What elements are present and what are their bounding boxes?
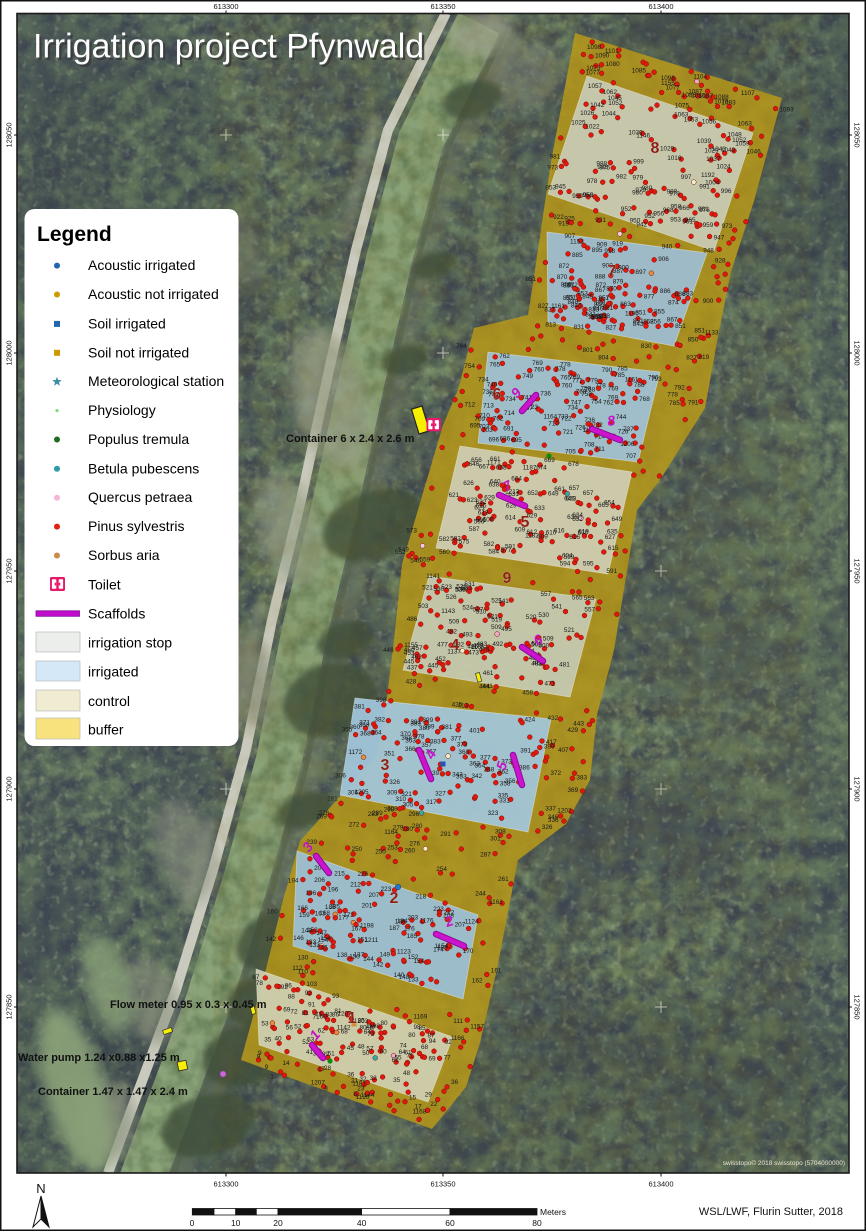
svg-text:Betula pubescens: Betula pubescens <box>88 460 199 476</box>
svg-text:60: 60 <box>380 1049 388 1056</box>
svg-text:343: 343 <box>452 772 463 779</box>
svg-text:541: 541 <box>498 598 509 605</box>
svg-text:615: 615 <box>476 503 487 510</box>
svg-text:Legend: Legend <box>37 223 112 246</box>
svg-text:948: 948 <box>703 247 714 254</box>
svg-text:244: 244 <box>475 891 486 898</box>
svg-text:68: 68 <box>421 1044 429 1051</box>
svg-text:226: 226 <box>358 871 369 878</box>
svg-text:769: 769 <box>532 360 543 367</box>
svg-text:206: 206 <box>314 877 325 884</box>
svg-text:702: 702 <box>493 416 504 423</box>
svg-text:613400: 613400 <box>648 1180 673 1189</box>
svg-text:462: 462 <box>411 654 422 661</box>
svg-text:981: 981 <box>550 153 561 160</box>
svg-text:61: 61 <box>405 1049 413 1056</box>
svg-text:1045: 1045 <box>608 95 623 102</box>
svg-text:21: 21 <box>351 1078 359 1085</box>
svg-text:162: 162 <box>472 977 483 984</box>
svg-text:150: 150 <box>349 953 360 960</box>
svg-text:355: 355 <box>342 727 353 734</box>
svg-text:526: 526 <box>446 594 457 601</box>
svg-text:40: 40 <box>357 1218 367 1228</box>
svg-text:973: 973 <box>722 223 733 230</box>
svg-text:526: 526 <box>456 583 467 590</box>
svg-text:827: 827 <box>544 307 555 314</box>
svg-text:900: 900 <box>703 298 714 305</box>
svg-text:695: 695 <box>511 437 522 444</box>
svg-text:530: 530 <box>433 586 444 593</box>
svg-text:473: 473 <box>468 650 479 657</box>
svg-text:1192: 1192 <box>701 172 715 179</box>
svg-text:85: 85 <box>358 1018 366 1025</box>
svg-text:366: 366 <box>405 746 416 753</box>
svg-text:509: 509 <box>543 636 554 643</box>
svg-text:785: 785 <box>669 400 680 407</box>
svg-text:760: 760 <box>534 367 545 374</box>
svg-text:254: 254 <box>436 866 447 873</box>
svg-text:281: 281 <box>327 795 338 802</box>
svg-text:127900: 127900 <box>5 776 14 801</box>
svg-text:1075: 1075 <box>675 102 690 109</box>
svg-text:1029: 1029 <box>660 146 675 153</box>
svg-text:999: 999 <box>633 159 644 166</box>
svg-text:74: 74 <box>400 1043 408 1050</box>
svg-text:145: 145 <box>317 944 328 951</box>
svg-text:947: 947 <box>714 235 725 242</box>
svg-text:148: 148 <box>301 927 312 934</box>
svg-text:749: 749 <box>522 373 533 380</box>
svg-text:287: 287 <box>480 852 491 859</box>
svg-text:638: 638 <box>489 481 500 488</box>
svg-text:563: 563 <box>584 595 595 602</box>
svg-text:1025: 1025 <box>571 120 586 127</box>
svg-text:1044: 1044 <box>602 111 617 118</box>
svg-text:187: 187 <box>389 925 400 932</box>
svg-text:88: 88 <box>288 994 296 1001</box>
svg-text:127900: 127900 <box>853 776 862 801</box>
svg-text:0: 0 <box>190 1218 195 1228</box>
svg-text:1172: 1172 <box>349 749 363 756</box>
svg-text:1046: 1046 <box>747 148 762 155</box>
svg-text:1205: 1205 <box>354 789 369 796</box>
svg-text:92: 92 <box>305 990 313 997</box>
svg-text:62: 62 <box>318 1027 326 1034</box>
svg-text:958: 958 <box>671 203 682 210</box>
svg-text:36: 36 <box>451 1079 459 1086</box>
svg-text:1182: 1182 <box>525 533 539 540</box>
svg-text:146: 146 <box>293 935 304 942</box>
svg-text:445: 445 <box>428 663 439 670</box>
svg-text:897: 897 <box>635 269 646 276</box>
svg-text:Container 1.47 x 1.47 x 2.4 m: Container 1.47 x 1.47 x 2.4 m <box>38 1086 188 1098</box>
svg-text:744: 744 <box>616 414 627 421</box>
svg-text:831: 831 <box>574 324 585 331</box>
svg-text:1143: 1143 <box>441 608 455 615</box>
svg-text:128050: 128050 <box>853 122 862 147</box>
svg-text:128050: 128050 <box>5 122 14 147</box>
svg-text:595: 595 <box>583 561 594 568</box>
svg-text:792: 792 <box>674 384 685 391</box>
svg-text:289: 289 <box>372 810 383 817</box>
svg-text:736: 736 <box>540 391 551 398</box>
svg-text:492: 492 <box>492 641 503 648</box>
svg-text:900: 900 <box>618 265 629 272</box>
svg-text:1056: 1056 <box>702 119 717 126</box>
svg-text:326: 326 <box>389 779 400 786</box>
svg-text:928: 928 <box>715 257 726 264</box>
svg-text:509: 509 <box>449 619 460 626</box>
svg-text:591: 591 <box>606 568 617 575</box>
svg-text:337: 337 <box>545 805 556 812</box>
svg-text:872: 872 <box>596 282 607 289</box>
svg-text:722: 722 <box>561 416 572 423</box>
svg-text:368: 368 <box>401 735 412 742</box>
svg-text:691: 691 <box>503 426 514 433</box>
svg-text:856: 856 <box>561 282 572 289</box>
svg-text:1107: 1107 <box>741 90 755 97</box>
svg-text:1087: 1087 <box>699 93 714 100</box>
svg-text:168: 168 <box>319 910 330 917</box>
svg-text:364: 364 <box>371 730 382 737</box>
svg-text:760: 760 <box>562 383 573 390</box>
svg-text:91: 91 <box>308 1002 316 1009</box>
svg-text:695: 695 <box>470 423 481 430</box>
svg-text:851: 851 <box>633 318 644 325</box>
svg-text:754: 754 <box>464 363 475 370</box>
svg-text:870: 870 <box>606 286 617 293</box>
svg-text:80: 80 <box>381 1020 389 1027</box>
svg-text:678: 678 <box>568 461 579 468</box>
svg-text:298: 298 <box>384 807 395 814</box>
svg-text:429: 429 <box>567 727 578 734</box>
svg-text:8: 8 <box>651 140 660 157</box>
svg-text:6: 6 <box>493 386 502 403</box>
svg-text:778: 778 <box>560 362 571 369</box>
svg-text:127950: 127950 <box>5 558 14 583</box>
svg-text:486: 486 <box>407 616 418 623</box>
svg-text:28: 28 <box>324 1065 332 1072</box>
svg-text:830: 830 <box>641 343 652 350</box>
svg-text:1126: 1126 <box>356 1094 370 1101</box>
svg-text:1124: 1124 <box>465 919 479 926</box>
svg-text:154: 154 <box>414 958 425 965</box>
svg-text:9: 9 <box>503 570 512 587</box>
svg-text:1016: 1016 <box>667 155 682 162</box>
svg-text:296: 296 <box>409 811 420 818</box>
svg-text:32: 32 <box>370 1075 378 1082</box>
svg-text:1024: 1024 <box>716 163 731 170</box>
svg-text:771: 771 <box>572 378 583 385</box>
svg-text:218: 218 <box>416 893 427 900</box>
svg-text:321: 321 <box>401 791 412 798</box>
svg-text:80: 80 <box>532 1218 542 1228</box>
svg-text:845: 845 <box>582 294 593 301</box>
svg-text:565: 565 <box>572 595 583 602</box>
svg-text:103: 103 <box>306 981 317 988</box>
svg-text:851: 851 <box>635 309 646 316</box>
svg-text:978: 978 <box>587 178 598 185</box>
svg-text:92: 92 <box>281 984 289 991</box>
svg-text:530: 530 <box>538 612 549 619</box>
svg-text:142: 142 <box>373 961 384 968</box>
svg-text:769: 769 <box>608 395 619 402</box>
svg-text:885: 885 <box>572 252 583 259</box>
svg-text:428: 428 <box>406 678 417 685</box>
svg-text:276: 276 <box>319 810 330 817</box>
svg-text:649: 649 <box>612 516 623 523</box>
svg-text:616: 616 <box>554 527 565 534</box>
svg-text:669: 669 <box>544 457 555 464</box>
svg-text:112: 112 <box>292 965 303 972</box>
svg-text:1042: 1042 <box>590 102 605 109</box>
svg-text:94: 94 <box>429 1038 437 1045</box>
svg-text:323: 323 <box>488 810 499 817</box>
svg-text:1133: 1133 <box>705 329 719 336</box>
svg-text:461: 461 <box>483 670 494 677</box>
svg-text:1101: 1101 <box>605 48 619 55</box>
svg-text:35: 35 <box>393 1077 401 1084</box>
svg-text:382: 382 <box>374 717 385 724</box>
svg-text:22: 22 <box>430 1101 438 1108</box>
svg-text:661: 661 <box>554 486 565 493</box>
svg-text:1098: 1098 <box>587 44 602 51</box>
svg-text:804: 804 <box>598 355 609 362</box>
svg-text:342: 342 <box>472 773 483 780</box>
svg-text:980: 980 <box>667 188 678 195</box>
svg-text:381: 381 <box>354 704 365 711</box>
svg-text:317: 317 <box>426 799 437 806</box>
svg-text:Irrigation project Pfynwald: Irrigation project Pfynwald <box>33 28 424 66</box>
svg-text:560: 560 <box>439 549 450 556</box>
svg-text:Acoustic not irrigated: Acoustic not irrigated <box>88 286 219 302</box>
svg-text:705: 705 <box>565 449 576 456</box>
svg-text:69: 69 <box>320 1013 328 1020</box>
svg-text:212: 212 <box>350 882 361 889</box>
svg-text:1207: 1207 <box>311 1080 326 1087</box>
svg-text:510: 510 <box>476 608 487 615</box>
svg-text:895: 895 <box>592 247 603 254</box>
svg-text:711: 711 <box>595 446 606 453</box>
svg-text:1176: 1176 <box>420 918 434 925</box>
svg-text:Sorbus aria: Sorbus aria <box>88 547 160 563</box>
svg-text:696: 696 <box>489 436 500 443</box>
svg-text:980: 980 <box>642 185 653 192</box>
svg-text:160: 160 <box>267 909 278 916</box>
svg-text:383: 383 <box>576 774 587 781</box>
svg-text:1093: 1093 <box>780 107 795 114</box>
svg-text:48: 48 <box>403 1070 411 1077</box>
svg-text:582: 582 <box>484 541 495 548</box>
svg-text:1104: 1104 <box>693 73 707 80</box>
svg-text:1096: 1096 <box>661 75 676 82</box>
svg-text:Scaffolds: Scaffolds <box>88 605 145 621</box>
svg-text:1166: 1166 <box>451 1035 465 1042</box>
svg-text:848: 848 <box>568 299 579 306</box>
svg-text:713: 713 <box>483 403 494 410</box>
svg-text:621: 621 <box>449 492 460 499</box>
svg-text:872: 872 <box>559 263 570 270</box>
svg-text:852: 852 <box>643 319 654 326</box>
svg-text:15: 15 <box>409 1095 417 1102</box>
svg-text:838: 838 <box>599 313 610 320</box>
svg-text:1043: 1043 <box>712 146 727 153</box>
svg-text:557: 557 <box>541 591 552 598</box>
svg-text:128000: 128000 <box>853 340 862 365</box>
svg-text:161: 161 <box>491 968 502 975</box>
svg-text:768: 768 <box>585 386 596 393</box>
svg-text:401: 401 <box>469 727 480 734</box>
svg-text:867: 867 <box>667 317 678 324</box>
svg-text:69: 69 <box>283 1006 291 1013</box>
svg-text:483: 483 <box>477 641 488 648</box>
svg-text:389: 389 <box>424 724 435 731</box>
svg-text:452: 452 <box>435 656 446 663</box>
svg-text:874: 874 <box>668 300 679 307</box>
svg-text:Container 6 x 2.4 x 2.6 m: Container 6 x 2.4 x 2.6 m <box>286 433 415 445</box>
svg-text:587: 587 <box>469 526 480 533</box>
svg-text:619: 619 <box>578 528 589 535</box>
svg-text:521: 521 <box>422 585 433 592</box>
svg-text:1123: 1123 <box>397 949 411 956</box>
svg-text:N: N <box>36 1181 45 1196</box>
svg-text:604: 604 <box>562 552 573 559</box>
svg-text:Toilet: Toilet <box>88 576 121 592</box>
svg-text:2: 2 <box>390 890 399 907</box>
svg-text:674: 674 <box>536 465 547 472</box>
svg-text:813: 813 <box>545 321 556 328</box>
svg-text:413: 413 <box>458 703 469 710</box>
svg-text:Pinus sylvestris: Pinus sylvestris <box>88 518 184 534</box>
svg-text:368: 368 <box>359 722 370 729</box>
svg-text:149: 149 <box>379 952 390 959</box>
svg-text:260: 260 <box>404 847 415 854</box>
svg-text:93: 93 <box>332 993 340 1000</box>
svg-text:791: 791 <box>688 400 699 407</box>
svg-text:irrigation stop: irrigation stop <box>88 635 172 651</box>
svg-text:973: 973 <box>547 164 558 171</box>
svg-text:652: 652 <box>527 490 538 497</box>
svg-text:471: 471 <box>545 680 556 687</box>
svg-text:965: 965 <box>685 217 696 224</box>
svg-text:613300: 613300 <box>213 2 238 11</box>
svg-text:111: 111 <box>453 1018 463 1025</box>
svg-text:177: 177 <box>338 915 349 922</box>
svg-text:888: 888 <box>595 274 606 281</box>
svg-text:1088: 1088 <box>715 94 730 101</box>
svg-text:Physiology: Physiology <box>88 402 156 418</box>
svg-text:swisstopo© 2018 swisstopo (570: swisstopo© 2018 swisstopo (5704000000) <box>723 1159 845 1167</box>
svg-text:952: 952 <box>583 192 594 199</box>
svg-text:1198: 1198 <box>360 923 374 930</box>
svg-text:309: 309 <box>387 789 398 796</box>
svg-text:56: 56 <box>286 1025 294 1032</box>
svg-text:407: 407 <box>558 747 569 754</box>
svg-text:Water pump 1.24 x0.88 x1.25 m: Water pump 1.24 x0.88 x1.25 m <box>18 1052 180 1064</box>
svg-text:128000: 128000 <box>5 340 14 365</box>
svg-text:634: 634 <box>572 512 583 519</box>
svg-text:372: 372 <box>550 770 561 777</box>
svg-text:613350: 613350 <box>430 1180 455 1189</box>
svg-text:541: 541 <box>552 604 563 611</box>
svg-text:80: 80 <box>360 1025 368 1032</box>
svg-text:68: 68 <box>341 1029 349 1036</box>
svg-text:1063: 1063 <box>738 120 753 127</box>
svg-text:707: 707 <box>626 453 637 460</box>
svg-text:877: 877 <box>644 293 655 300</box>
svg-text:714: 714 <box>504 410 515 417</box>
svg-text:1155: 1155 <box>404 642 418 649</box>
svg-text:14: 14 <box>282 1060 290 1067</box>
svg-text:657: 657 <box>583 490 594 497</box>
svg-text:52: 52 <box>294 1024 302 1031</box>
svg-text:481: 481 <box>559 662 570 669</box>
svg-text:521: 521 <box>564 627 575 634</box>
svg-text:1202: 1202 <box>557 808 572 815</box>
svg-text:1168: 1168 <box>413 1108 427 1115</box>
svg-text:327: 327 <box>435 790 446 797</box>
svg-text:1171: 1171 <box>487 459 501 466</box>
svg-text:398: 398 <box>376 697 387 704</box>
svg-text:Flow meter 0.95 x 0.3 x 0.45 m: Flow meter 0.95 x 0.3 x 0.45 m <box>110 999 267 1011</box>
svg-text:9: 9 <box>258 1050 262 1057</box>
svg-text:520: 520 <box>526 614 537 621</box>
svg-text:827: 827 <box>606 325 617 332</box>
svg-text:1053: 1053 <box>684 116 699 123</box>
svg-text:703: 703 <box>482 427 493 434</box>
svg-text:Populus tremula: Populus tremula <box>88 431 189 447</box>
svg-text:81: 81 <box>302 1010 310 1017</box>
svg-text:301: 301 <box>490 836 501 843</box>
svg-text:176: 176 <box>404 926 415 933</box>
svg-text:601: 601 <box>476 517 487 524</box>
svg-text:10: 10 <box>231 1218 241 1228</box>
svg-text:653: 653 <box>566 496 577 503</box>
svg-text:29: 29 <box>425 1092 433 1099</box>
svg-text:Soil irrigated: Soil irrigated <box>88 315 166 331</box>
svg-text:906: 906 <box>658 256 669 263</box>
svg-text:45: 45 <box>347 1045 355 1052</box>
svg-text:Acoustic irrigated: Acoustic irrigated <box>88 257 195 273</box>
svg-text:5: 5 <box>521 514 530 531</box>
svg-text:Quercus petraea: Quercus petraea <box>88 489 192 505</box>
svg-text:657: 657 <box>569 485 580 492</box>
svg-text:785: 785 <box>614 372 625 379</box>
svg-text:159: 159 <box>299 912 310 919</box>
svg-text:1080: 1080 <box>606 61 621 68</box>
svg-text:654: 654 <box>604 499 615 506</box>
svg-text:35: 35 <box>264 1036 272 1043</box>
svg-text:988: 988 <box>596 161 607 168</box>
svg-text:762: 762 <box>499 353 510 360</box>
svg-text:710: 710 <box>548 421 559 428</box>
svg-text:870: 870 <box>557 274 568 281</box>
svg-text:185: 185 <box>407 933 418 940</box>
svg-text:180: 180 <box>395 918 406 925</box>
svg-text:1077: 1077 <box>586 69 601 76</box>
svg-text:391: 391 <box>520 747 531 754</box>
svg-text:50: 50 <box>362 1050 370 1057</box>
svg-text:769: 769 <box>608 386 619 393</box>
svg-text:4: 4 <box>451 637 460 654</box>
svg-text:417: 417 <box>546 739 557 746</box>
svg-text:72: 72 <box>290 1009 298 1016</box>
svg-text:708: 708 <box>584 442 595 449</box>
svg-text:78: 78 <box>256 980 264 987</box>
svg-text:907: 907 <box>565 233 576 240</box>
svg-text:Meteorological station: Meteorological station <box>88 373 224 389</box>
svg-text:194: 194 <box>288 878 299 885</box>
